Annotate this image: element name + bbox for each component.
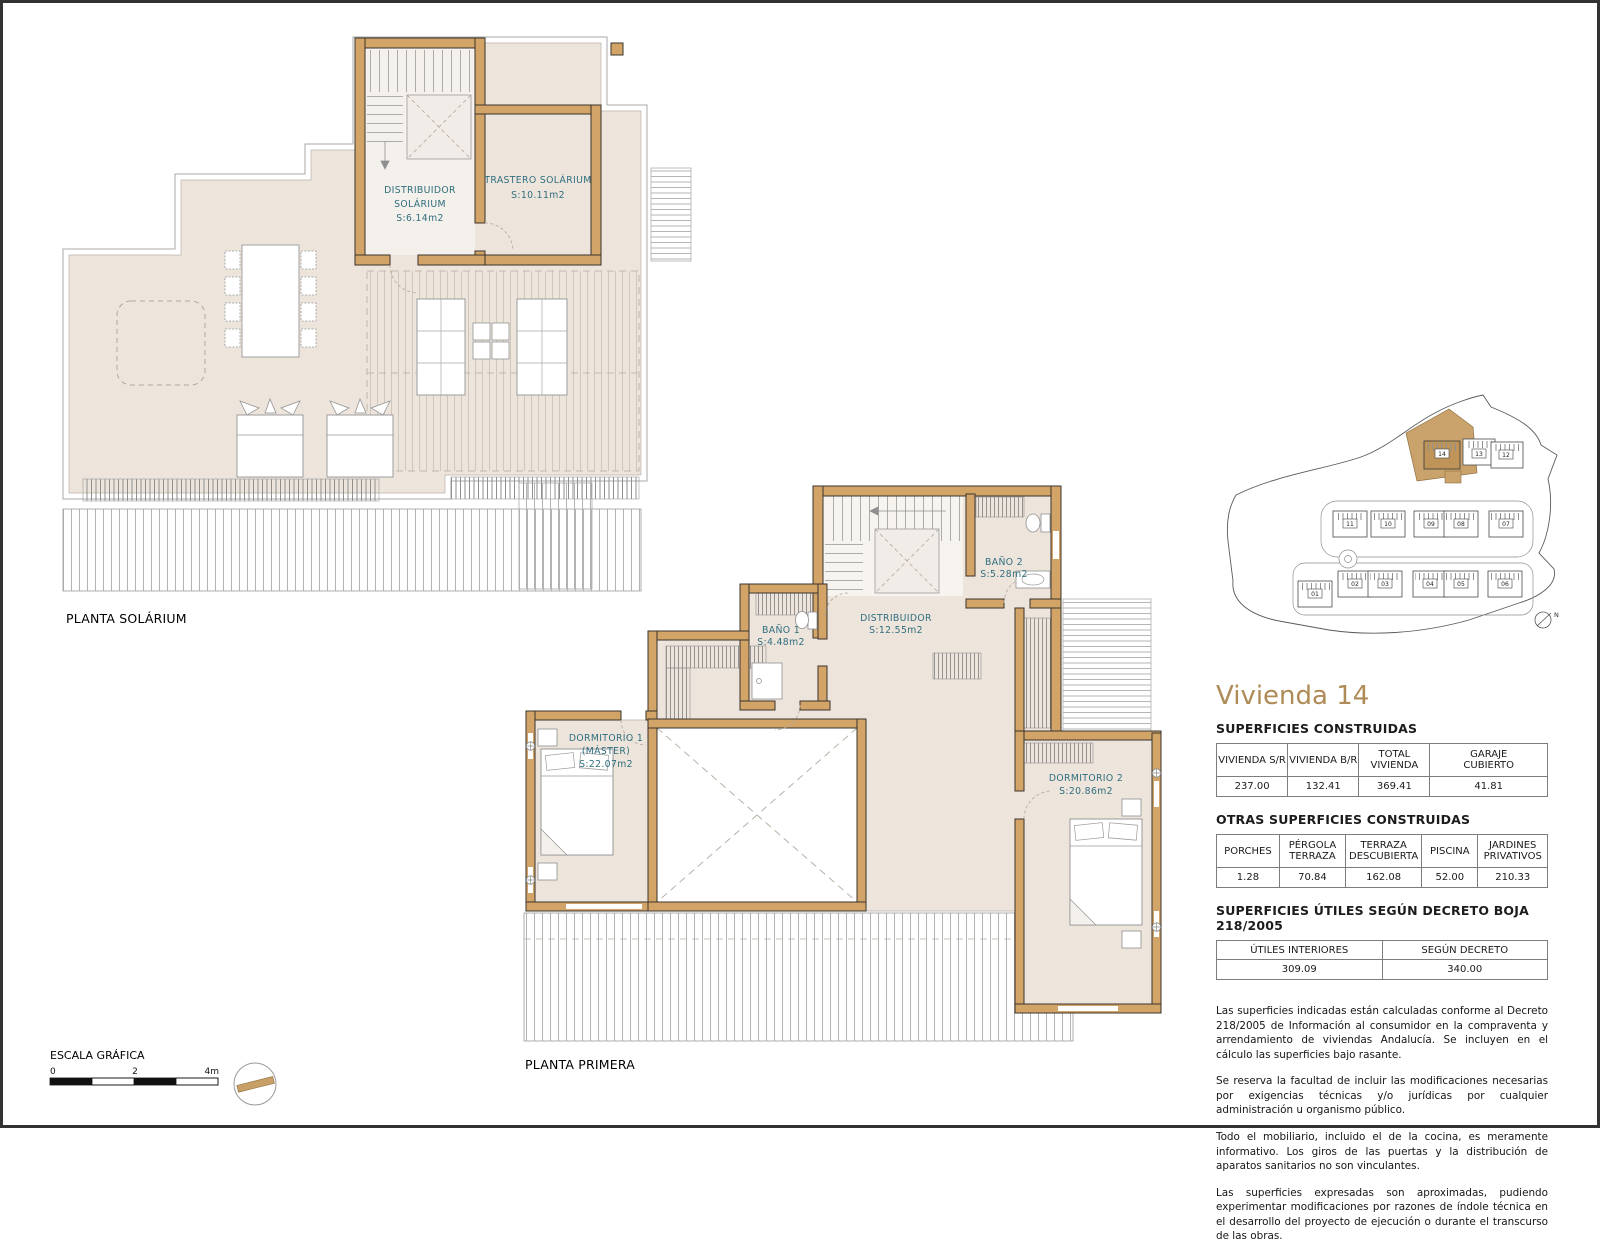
- room-area-distribuidor: S:12.55m2: [869, 625, 923, 636]
- site-house-14: 14: [1424, 441, 1460, 469]
- site-house-02: 02: [1338, 571, 1372, 597]
- site-house-03: 03: [1368, 571, 1402, 597]
- plan-sheet: DISTRIBUIDOR SOLÁRIUM S:6.14m2 TRASTERO …: [0, 0, 1600, 1128]
- col-header: VIVIENDA S/R: [1217, 744, 1288, 777]
- room-label-trastero: TRASTERO SOLÁRIUM: [483, 174, 591, 186]
- info-panel: Vivienda 14 SUPERFICIES CONSTRUIDAS VIVI…: [1216, 681, 1548, 1256]
- site-house-06: 06: [1488, 571, 1522, 597]
- svg-text:10: 10: [1384, 521, 1392, 528]
- site-house-12: 12: [1491, 442, 1523, 468]
- cell-value: 309.09: [1217, 960, 1383, 980]
- first-floor-plan: DORMITORIO 1 (MÁSTER) S:22.07m2 BAÑO 1 S…: [518, 481, 1170, 1053]
- site-plan: 14 13 12 11 10 09 08 07 01 02 03 04 05 0…: [1221, 383, 1566, 645]
- note-paragraph: Las superficies indicadas están calculad…: [1216, 1004, 1548, 1062]
- room-area-bano1: S:4.48m2: [757, 637, 805, 648]
- window-symbol: [1152, 923, 1160, 931]
- svg-text:12: 12: [1502, 452, 1510, 459]
- stair-treads: [367, 92, 403, 144]
- col-header: GARAJE CUBIERTO: [1430, 744, 1548, 777]
- table-other-surfaces: PORCHES PÉRGOLA TERRAZA TERRAZA DESCUBIE…: [1216, 834, 1548, 888]
- col-header: ÚTILES INTERIORES: [1217, 941, 1383, 960]
- scale-label: ESCALA GRÁFICA: [50, 1049, 145, 1062]
- window-symbol: [526, 742, 534, 750]
- svg-text:08: 08: [1457, 521, 1465, 528]
- svg-text:07: 07: [1502, 521, 1510, 528]
- pergola-east: [1063, 599, 1151, 731]
- cell-value: 70.84: [1279, 868, 1345, 888]
- svg-text:14: 14: [1438, 451, 1446, 458]
- site-house-05: 05: [1444, 571, 1478, 597]
- section-heading-useful: SUPERFICIES ÚTILES SEGÚN DECRETO BOJA 21…: [1216, 903, 1548, 933]
- cell-value: 162.08: [1346, 868, 1422, 888]
- cell-value: 52.00: [1422, 868, 1478, 888]
- cell-value: 210.33: [1478, 868, 1548, 888]
- svg-text:02: 02: [1351, 581, 1359, 588]
- site-house-11: 11: [1333, 511, 1367, 537]
- svg-text:04: 04: [1426, 581, 1434, 588]
- section-heading-constructed: SUPERFICIES CONSTRUIDAS: [1216, 721, 1548, 736]
- window-symbol: [526, 876, 534, 884]
- svg-text:N: N: [1554, 611, 1559, 619]
- cell-value: 237.00: [1217, 777, 1288, 797]
- compass-logo-icon: [231, 1060, 279, 1108]
- site-houses: 14 13 12 11 10 09 08 07 01 02 03 04 05 0…: [1298, 439, 1523, 607]
- svg-text:01: 01: [1311, 591, 1319, 598]
- scale-tick-4: 4m: [205, 1067, 220, 1077]
- room-label-distribuidor-solarium-2: SOLÁRIUM: [394, 198, 446, 210]
- solarium-railing-left: [83, 479, 379, 501]
- room-label-distribuidor-solarium: DISTRIBUIDOR: [384, 185, 456, 196]
- section-heading-other: OTRAS SUPERFICIES CONSTRUIDAS: [1216, 812, 1548, 827]
- site-house-01: 01: [1298, 581, 1332, 607]
- col-header: VIVIENDA B/R: [1288, 744, 1359, 777]
- table-useful-surfaces: ÚTILES INTERIORES SEGÚN DECRETO 309.09 3…: [1216, 940, 1548, 980]
- table-constructed-surfaces: VIVIENDA S/R VIVIENDA B/R TOTAL VIVIENDA…: [1216, 743, 1548, 797]
- col-header: PÉRGOLA TERRAZA: [1279, 835, 1345, 868]
- svg-text:09: 09: [1427, 521, 1435, 528]
- svg-text:13: 13: [1475, 451, 1483, 458]
- site-house-09: 09: [1414, 511, 1448, 537]
- stair-treads: [367, 50, 473, 92]
- svg-text:03: 03: [1381, 581, 1389, 588]
- room-label-bano2: BAÑO 2: [985, 557, 1023, 568]
- svg-text:05: 05: [1457, 581, 1465, 588]
- legal-notes: Las superficies indicadas están calculad…: [1216, 1004, 1548, 1244]
- site-house-07: 07: [1489, 511, 1523, 537]
- site-roundabout: [1339, 550, 1357, 568]
- trellis-northwest: [519, 483, 592, 589]
- col-header: PISCINA: [1422, 835, 1478, 868]
- first-floor-plan-title: PLANTA PRIMERA: [525, 1057, 635, 1072]
- first-floor-drawing: DORMITORIO 1 (MÁSTER) S:22.07m2 BAÑO 1 S…: [519, 483, 1161, 1041]
- window-symbol: [1152, 769, 1160, 777]
- sun-lounger: [237, 399, 303, 477]
- room-label-dorm1: DORMITORIO 1: [569, 733, 643, 744]
- north-arrow-icon: N: [1535, 611, 1559, 628]
- cell-value: 340.00: [1382, 960, 1548, 980]
- site-plan-drawing: 14 13 12 11 10 09 08 07 01 02 03 04 05 0…: [1227, 395, 1559, 633]
- note-paragraph: Se reserva la facultad de incluir las mo…: [1216, 1074, 1548, 1118]
- scale-bar: 0 2 4m: [49, 1065, 225, 1091]
- scale-tick-2: 2: [132, 1067, 138, 1077]
- dwelling-title: Vivienda 14: [1216, 681, 1548, 711]
- col-header: JARDINES PRIVATIVOS: [1478, 835, 1548, 868]
- svg-text:11: 11: [1346, 521, 1354, 528]
- col-header: SEGÚN DECRETO: [1382, 941, 1548, 960]
- room-label-bano1: BAÑO 1: [762, 625, 800, 636]
- room-label-dorm2: DORMITORIO 2: [1049, 773, 1123, 784]
- scale-tick-0: 0: [50, 1067, 56, 1077]
- col-header: PORCHES: [1217, 835, 1280, 868]
- solarium-deck: [367, 271, 639, 471]
- sun-lounger: [327, 399, 393, 477]
- room-area-trastero: S:10.11m2: [511, 190, 565, 201]
- site-house-08: 08: [1444, 511, 1478, 537]
- note-paragraph: Todo el mobiliario, incluido el de la co…: [1216, 1130, 1548, 1174]
- room-label-dorm1-sub: (MÁSTER): [582, 745, 630, 757]
- solarium-plan-title: PLANTA SOLÁRIUM: [66, 611, 187, 626]
- col-header: TOTAL VIVIENDA: [1359, 744, 1430, 777]
- room-area-dorm1: S:22.07m2: [579, 759, 633, 770]
- note-paragraph: Las superficies expresadas son aproximad…: [1216, 1186, 1548, 1244]
- lower-terrace-band: [524, 913, 1073, 1041]
- site-house-10: 10: [1371, 511, 1405, 537]
- room-label-distribuidor: DISTRIBUIDOR: [860, 613, 932, 624]
- room-area-dorm2: S:20.86m2: [1059, 786, 1113, 797]
- cell-value: 369.41: [1359, 777, 1430, 797]
- site-house-13: 13: [1463, 439, 1495, 465]
- parcel-14-garage: [1445, 471, 1461, 483]
- room-area-bano2: S:5.28m2: [980, 569, 1028, 580]
- stair-treads: [825, 541, 863, 593]
- solarium-side-pergola: [651, 168, 691, 261]
- cell-value: 1.28: [1217, 868, 1280, 888]
- cell-value: 132.41: [1288, 777, 1359, 797]
- col-header: TERRAZA DESCUBIERTA: [1346, 835, 1422, 868]
- cell-value: 41.81: [1430, 777, 1548, 797]
- site-house-04: 04: [1413, 571, 1447, 597]
- room-area-distribuidor-solarium: S:6.14m2: [396, 213, 444, 224]
- svg-text:06: 06: [1501, 581, 1509, 588]
